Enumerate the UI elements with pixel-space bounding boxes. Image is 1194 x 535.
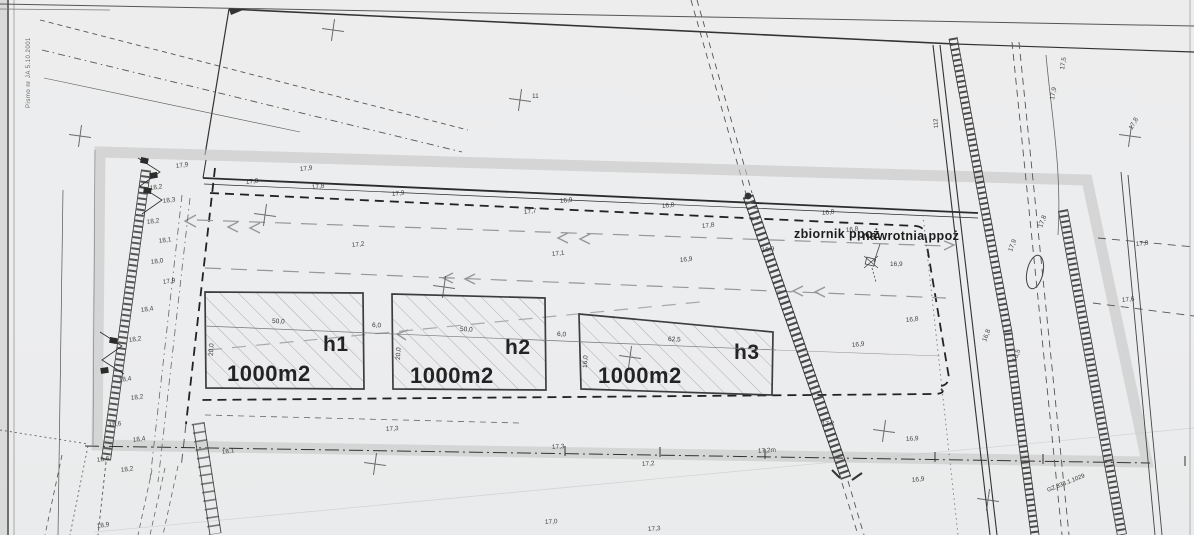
ladder-symbol (193, 422, 221, 535)
building-h1-id: h1 (323, 333, 349, 356)
spot-elevation: 18,2 (149, 183, 163, 192)
dim-h2-depth: 20,0 (395, 347, 402, 360)
tank-symbol (864, 244, 880, 282)
building-h2: h2 1000m2 (392, 294, 546, 390)
grid-cross (508, 88, 533, 113)
spot-elevation: 17,9 (1049, 86, 1058, 100)
grid-cross (253, 203, 278, 228)
spot-elevation: 18,2 (120, 465, 134, 474)
spot-elevation: 16,8 (821, 209, 835, 217)
spot-elevation: 17,2m (758, 447, 777, 455)
spot-elevation: 18,0 (150, 257, 164, 266)
strip-top-anchor (745, 193, 752, 200)
grid-cross (872, 419, 897, 444)
spot-elevation: 16,8 (661, 202, 675, 210)
left-parallel-dashed (138, 195, 190, 535)
spot-elevation: 11 (532, 93, 539, 100)
spot-elevation: 16,9 (906, 435, 919, 443)
scanned-site-plan: Pismo nr JA 5.10.2001 (0, 0, 1194, 535)
grid-cross (321, 18, 346, 43)
paper-left-margin (0, 0, 7, 535)
spot-elevation: 17,3 (386, 425, 399, 433)
side-note: Pismo nr JA 5.10.2001 (26, 37, 32, 108)
spot-elevation: 17,9 (391, 190, 405, 198)
left-track-strip (98, 157, 190, 535)
building-h1: h1 1000m2 (205, 292, 364, 389)
building-h3: h3 1000m2 (579, 314, 773, 395)
dim-gap-2: 6,0 (557, 331, 567, 338)
site-plan-drawing: Pismo nr JA 5.10.2001 (0, 0, 1194, 535)
upper-field-boundary (205, 9, 1194, 155)
spot-elevation: 17,2 (351, 241, 365, 249)
building-h3-id: h3 (734, 341, 760, 364)
spot-elevation: 17,3 (648, 525, 661, 533)
spot-elevation: 16,9 (851, 341, 865, 349)
spot-elevation: 17,9 (1007, 238, 1018, 253)
dim-h2-width: 50,0 (460, 326, 473, 333)
spot-elevation: 16,9 (911, 476, 925, 484)
boundary-arrow-mark (229, 9, 243, 15)
spot-elevation: 17,7 (523, 208, 537, 216)
spot-elevation: 16,8 (845, 226, 859, 234)
spot-elevation: 17,6 (1121, 296, 1135, 304)
spot-elevation: 18,4 (118, 375, 132, 384)
spot-elevation: 18,2 (146, 217, 160, 226)
spot-elevation: 18,6 (96, 455, 110, 464)
grid-cross (976, 488, 1001, 513)
grid-cross (68, 124, 93, 149)
nawrotnia-label: nawrotnia ppoż (862, 229, 959, 243)
spot-elevation: 18,2 (130, 393, 144, 402)
right-track-strip-upper (949, 37, 1012, 334)
dim-h3-depth: 16,0 (582, 355, 589, 368)
spot-elevation: 17,0 (545, 518, 558, 526)
dim-h1-width: 50,0 (272, 318, 285, 325)
dim-gap-1: 6,0 (372, 322, 382, 329)
dim-h3-width: 62,5 (668, 336, 681, 343)
spot-elevation: 16,8 (905, 316, 919, 324)
topleft-dashed-lines (40, 20, 468, 152)
spot-elevation: 18,3 (162, 196, 176, 205)
spot-elevation: 17,2 (642, 460, 655, 468)
spot-elevation: 18,4 (140, 305, 154, 314)
grid-cross (363, 452, 388, 477)
fire-annotation: zbiornik ppoż nawrotnia ppoż (794, 227, 959, 282)
right-track-strip-lower-left (1004, 332, 1039, 535)
building-h2-area: 1000m2 (410, 363, 494, 388)
spot-elevation: 16,9 (890, 261, 903, 268)
spot-elevation: 17,9 (162, 277, 176, 286)
spot-elevation: 17,8 (1037, 214, 1048, 229)
track-number-label: 112 (933, 118, 940, 129)
spot-elevation: 17,1 (551, 250, 565, 258)
spot-elevation: 17,9 (299, 165, 313, 173)
survey-grid-crosses (68, 18, 1143, 513)
spot-elevation: 17,8 (245, 178, 259, 186)
parcel-code-label: GZ 838.1.1029 (1047, 473, 1087, 494)
spot-elevation: 17,3 (552, 443, 565, 451)
dim-h1-depth: 20,0 (208, 343, 215, 356)
spot-elevation: 18,1 (158, 236, 172, 245)
building-h1-area: 1000m2 (227, 361, 311, 386)
spot-elevation: 18,1 (221, 447, 235, 456)
spot-elevation: 18,9 (96, 521, 110, 530)
spot-elevation: 17,5 (1059, 56, 1068, 70)
spot-elevation: 17,2 (822, 420, 835, 428)
spot-elevation: 18,2 (128, 335, 142, 344)
spot-elevation: 16,9 (679, 256, 693, 264)
spot-elevation: 17,9 (175, 161, 189, 170)
spot-elevation: 17,8 (1135, 240, 1149, 248)
spot-elevation: 16,9 (559, 197, 573, 205)
spot-elevation: 17,8 (1128, 116, 1141, 131)
spot-elevation: 18,6 (108, 420, 122, 429)
right-track-strip-lower-right (1059, 209, 1127, 535)
spot-elevation: 17,8 (311, 183, 325, 191)
spot-elevation: 17,8 (701, 222, 715, 230)
building-h3-area: 1000m2 (598, 363, 682, 388)
spot-elevation: 16,9 (761, 246, 775, 254)
spot-elevation: 16,8 (981, 328, 992, 343)
